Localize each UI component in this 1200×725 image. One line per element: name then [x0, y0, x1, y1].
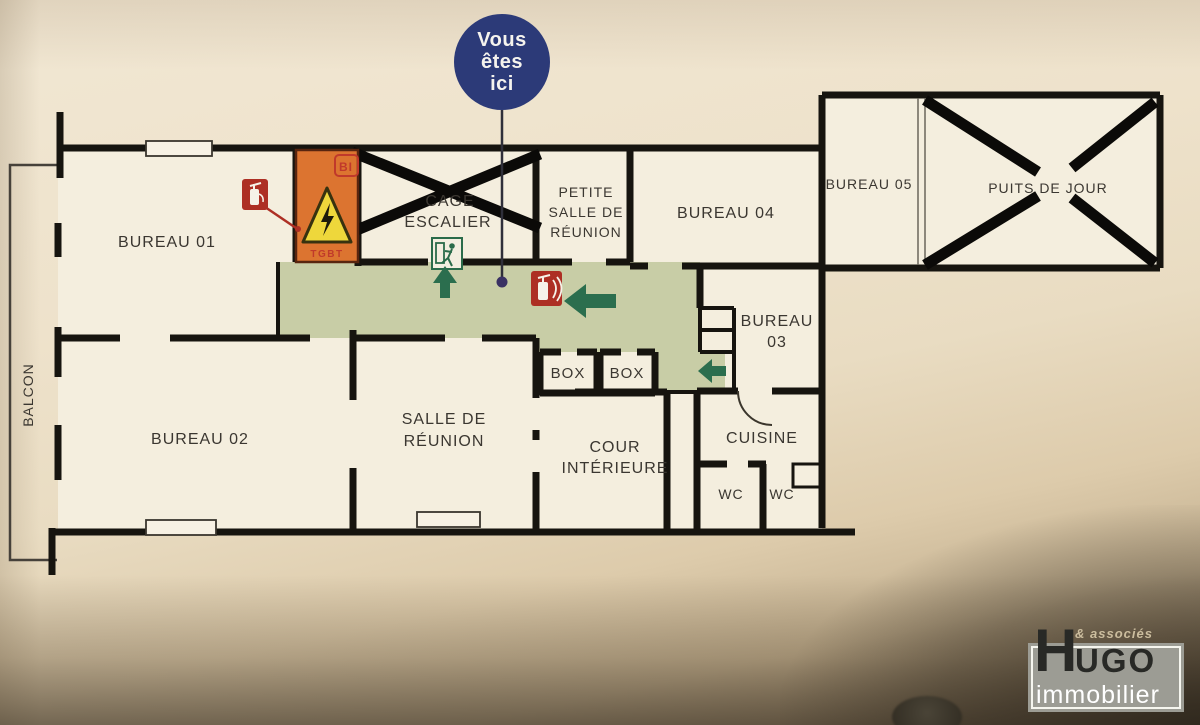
fire-extinguisher-icon-2	[531, 271, 562, 306]
room-label-cage-escalier-2: ESCALIER	[404, 214, 491, 231]
room-label-salle-reunion-2: RÉUNION	[404, 431, 485, 450]
logo-subtitle: immobilier	[1036, 682, 1160, 709]
room-label-puits-de-jour: PUITS DE JOUR	[988, 180, 1108, 196]
room-label-bureau03-2: 03	[767, 334, 787, 351]
room-label-cuisine: CUISINE	[726, 430, 798, 447]
tgbt-label: TGBT	[310, 249, 343, 260]
logo-associes: & associés	[1075, 626, 1153, 641]
exit-sign-icon	[432, 238, 462, 269]
hugo-immobilier-logo: & associés H UGO immobilier	[1028, 643, 1184, 712]
balcony-outline	[10, 165, 57, 560]
room-label-cour-interieure-2: INTÉRIEURE	[562, 458, 669, 477]
window-salle-reunion	[417, 512, 480, 527]
room-label-cour-interieure-1: COUR	[589, 439, 640, 456]
badge-line-3: ici	[490, 73, 514, 95]
room-label-box1: BOX	[551, 365, 586, 382]
logo-brand-h: H	[1034, 621, 1077, 681]
room-label-box2: BOX	[610, 365, 645, 382]
room-label-petite-salle-1: PETITE	[558, 184, 613, 200]
logo-brand-rest: UGO	[1075, 643, 1156, 679]
tgbt-cabinet: BI TGBT	[296, 150, 358, 262]
room-label-bureau01: BUREAU 01	[118, 234, 216, 251]
floor-plan-photo: BI TGBT	[0, 0, 1200, 725]
badge-line-1: Vous	[477, 29, 526, 51]
room-label-wc1: WC	[718, 486, 743, 502]
badge-line-2: êtes	[481, 51, 523, 73]
room-label-wc2: WC	[769, 486, 794, 502]
room-label-balcon: BALCON	[20, 363, 36, 427]
room-label-salle-reunion-1: SALLE DE	[402, 411, 486, 428]
room-label-bureau04: BUREAU 04	[677, 205, 775, 222]
room-label-petite-salle-3: RÉUNION	[550, 224, 622, 240]
window-bureau01	[146, 141, 212, 156]
bi-label: BI	[339, 160, 353, 174]
room-label-bureau05: BUREAU 05	[826, 176, 913, 192]
badge-location-dot	[497, 277, 508, 288]
window-bureau02	[146, 520, 216, 535]
room-label-bureau03-1: BUREAU	[741, 313, 814, 330]
room-label-cage-escalier-1: CAGE	[425, 193, 474, 210]
room-label-petite-salle-2: SALLE DE	[549, 204, 624, 220]
room-label-bureau02: BUREAU 02	[151, 431, 249, 448]
